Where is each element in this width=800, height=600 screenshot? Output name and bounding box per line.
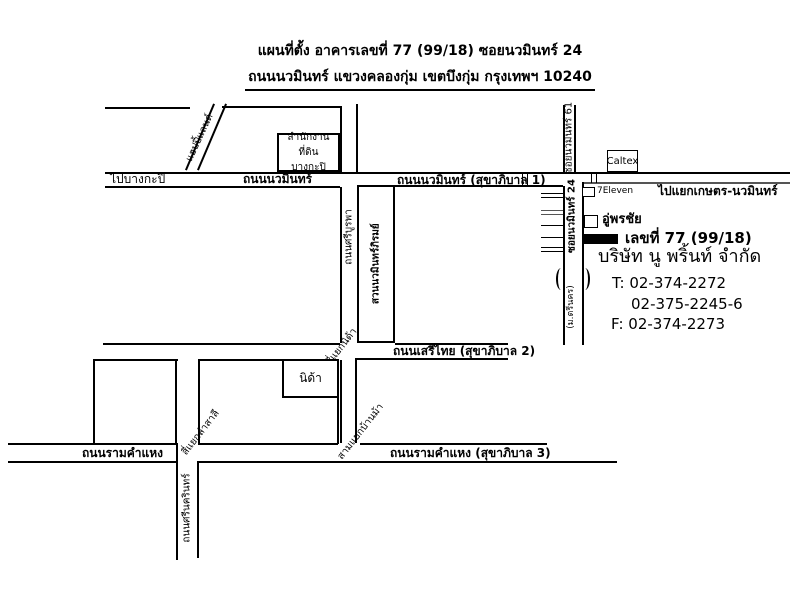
bridge-arc-right	[580, 268, 590, 290]
ramkhamhaeng-north-edge-3	[360, 443, 547, 445]
destination-address: เลขที่ 77 (99/18)	[625, 230, 752, 247]
road-line-upper-left	[105, 107, 190, 109]
band-tick	[522, 172, 523, 186]
siburapha-edge-lower-1	[340, 360, 342, 443]
company-tel-1: T: 02-374-2272	[612, 275, 726, 292]
mu-trinakhon-label: (ม.ตรีนคร)	[566, 285, 576, 329]
nawamin-label: ถนนนวมินทร์	[243, 173, 312, 187]
nawamin-phirom-park-box: สวนนวมินทร์ภิรมย์	[357, 185, 395, 343]
title-line2: ถนนนวมินทร์ แขวงคลองกุ่ม เขตบึงกุ่ม กรุง…	[245, 66, 595, 91]
soi24-side-tick	[541, 247, 563, 248]
ramkhamhaeng-north-edge-1	[8, 443, 176, 445]
to-kaset-nawamin-label: ไปแยกเกษตร-นวมินทร์	[658, 185, 778, 199]
serithai-label: ถนนเสรีไทย (สุขาภิบาล 2)	[393, 345, 535, 359]
nawamin-phirom-park-label: สวนนวมินทร์ภิรมย์	[370, 224, 382, 305]
soi24-edge-right	[582, 182, 584, 345]
band-tick	[596, 172, 597, 183]
siburapha-label: ถนนศรีบูรพา	[343, 209, 355, 264]
serithai-north-edge-left	[103, 343, 340, 345]
banma-junction-label: สามแยกบ้านม้า	[336, 402, 387, 462]
destination-marker	[583, 234, 618, 244]
srinagarindra-label: ถนนศรีนครินทร์	[181, 473, 193, 542]
block-edge	[93, 359, 95, 444]
bridge-arc-left	[556, 268, 566, 290]
road-line-upper-right	[222, 106, 340, 108]
map-canvas: แผนที่ตั้ง อาคารเลขที่ 77 (99/18) ซอยนวม…	[0, 0, 800, 600]
soi61-label: ซอยนวมินทร์ 61	[563, 102, 575, 174]
lamsali-junction-label: สี่แยกลำสาลี	[180, 408, 222, 458]
pornchai-garage-label: อู่พรชัย	[602, 213, 642, 228]
srinagarindra-edge-2	[197, 461, 199, 558]
title-line1: แผนที่ตั้ง อาคารเลขที่ 77 (99/18) ซอยนวม…	[40, 40, 800, 62]
soi24-label: ซอยนวมินทร์ 24	[566, 179, 578, 253]
ramkhamhaeng-south-edge-1	[8, 461, 176, 463]
ramkhamhaeng-sukhaphiban3-label: ถนนรามคำแหง (สุขาภิบาล 3)	[390, 447, 551, 461]
seven-eleven-label: 7Eleven	[597, 186, 633, 196]
band-tick	[591, 172, 592, 183]
band-tick	[527, 172, 528, 186]
soi24-side-tick	[541, 237, 563, 238]
ramkhamhaeng-south-edge-2	[198, 461, 617, 463]
company-fax: F: 02-374-2273	[611, 316, 725, 333]
soi24-side-tick	[541, 193, 563, 194]
nida-box: นิด้า	[282, 359, 339, 398]
caltex-label: Caltex	[607, 156, 639, 167]
srinagarindra-edge-1	[176, 443, 178, 560]
to-bangkapi-label: ไปบางกะปิ	[110, 173, 165, 187]
soi24-edge-left	[563, 186, 565, 345]
land-office-box: สำนักงานที่ดิน บางกะปิ	[277, 133, 340, 172]
soi24-side-tick	[541, 214, 563, 215]
soi24-side-tick	[541, 225, 563, 226]
soi24-side-tick	[541, 210, 563, 211]
company-name: บริษัท นู พริ้นท์ จำกัด	[598, 247, 761, 268]
soi24-side-tick	[541, 197, 563, 198]
nida-label: นิด้า	[299, 369, 322, 388]
caltex-box: Caltex	[607, 150, 638, 172]
ramkhamhaeng-north-edge-2	[198, 443, 338, 445]
nawamin-sukhaphiban1-label: ถนนนวมินทร์ (สุขาภิบาล 1)	[397, 174, 546, 188]
map-title: แผนที่ตั้ง อาคารเลขที่ 77 (99/18) ซอยนวม…	[40, 40, 800, 91]
land-office-label-line1: สำนักงานที่ดิน	[279, 130, 338, 160]
north-spur-edge-2	[356, 104, 358, 172]
seven-eleven-box	[582, 187, 595, 197]
pornchai-garage-box	[584, 215, 598, 228]
soi24-side-tick	[541, 251, 563, 252]
block-edge	[175, 359, 177, 444]
serithai-south-edge-1	[93, 359, 178, 361]
siburapha-edge-upper	[340, 187, 342, 343]
north-spur-edge-1	[340, 106, 342, 172]
company-tel-2: 02-375-2245-6	[631, 296, 743, 313]
ramkhamhaeng-label: ถนนรามคำแหง	[82, 447, 163, 461]
